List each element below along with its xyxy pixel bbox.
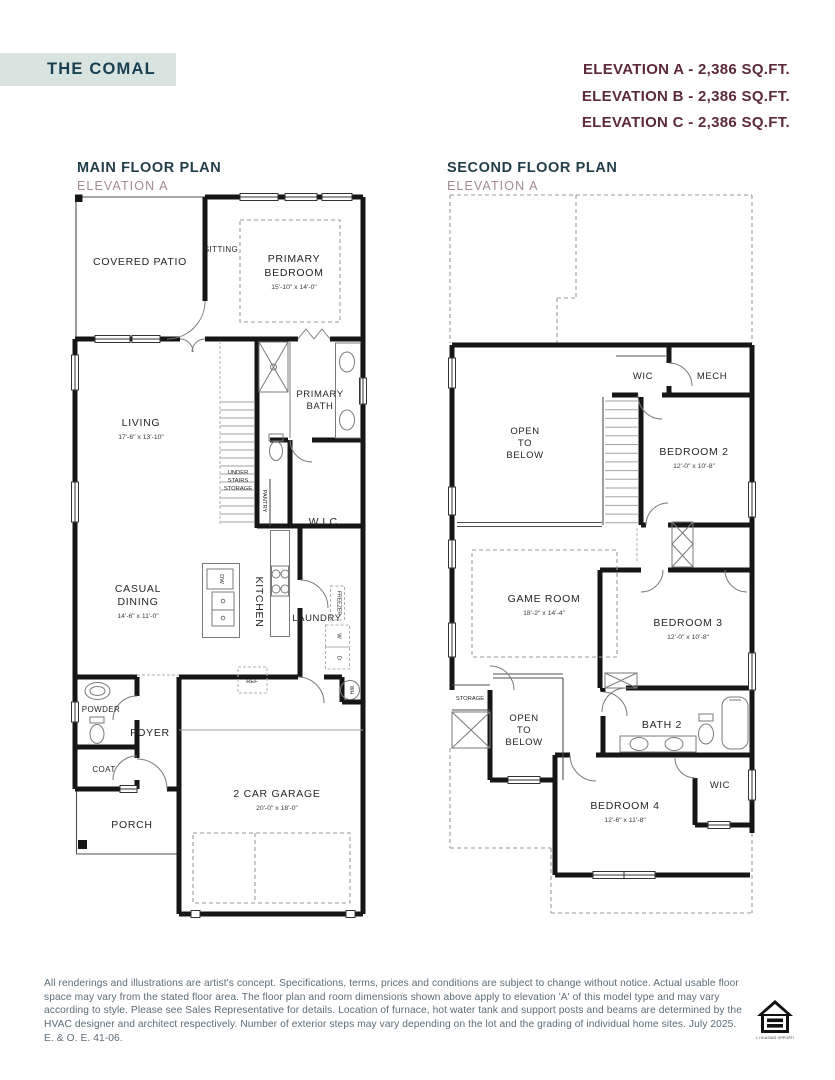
logo-caption: EQUAL HOUSING OPPORTUNITY xyxy=(756,1036,794,1040)
label-mech: MECH xyxy=(697,371,727,382)
label-wic: W.I.C. xyxy=(309,516,342,528)
main-floor-plan-title: MAIN FLOOR PLAN xyxy=(77,160,221,176)
label-open2-1: OPEN xyxy=(509,713,538,724)
elevation-b: ELEVATION B - 2,386 SQ.FT. xyxy=(582,84,790,111)
label-garage: 2 CAR GARAGE xyxy=(233,788,320,800)
second-floor-plan-title: SECOND FLOOR PLAN xyxy=(447,160,618,176)
label-freezer: FREEZER xyxy=(336,591,342,615)
label-under-stairs-1: UNDER xyxy=(228,470,249,476)
label-bedroom4-dims: 12'-6" x 11'-8" xyxy=(604,817,646,824)
washer-dryer xyxy=(326,625,350,669)
label-porch: PORCH xyxy=(111,819,152,831)
label-dw: DW xyxy=(218,574,224,584)
equal-housing-opportunity-logo: EQUAL HOUSING OPPORTUNITY xyxy=(756,999,794,1045)
label-washer: W xyxy=(336,633,342,639)
label-wic-top: WIC xyxy=(633,371,653,382)
label-primary-1: PRIMARY xyxy=(268,253,321,265)
label-covered-patio: COVERED PATIO xyxy=(93,256,187,268)
house-icon xyxy=(757,1000,793,1033)
label-primary-bath-2: BATH xyxy=(306,401,333,412)
label-game-room-dims: 18'-2" x 14'-4" xyxy=(523,610,565,617)
label-casual-1: CASUAL xyxy=(115,583,161,595)
label-coat: COAT xyxy=(92,765,115,774)
label-pantry: PANTRY xyxy=(261,490,267,513)
main-walls xyxy=(75,197,363,914)
stairs-second xyxy=(603,397,639,562)
label-foyer: FOYER xyxy=(130,727,170,739)
label-bedroom4: BEDROOM 4 xyxy=(590,800,659,812)
label-living-dims: 17'-6" x 13'-10" xyxy=(118,434,164,441)
second-floor-plan-drawing: WIC MECH OPEN TO BELOW BEDROOM 2 12'-0" … xyxy=(442,188,758,920)
label-laundry: LAUNDRY xyxy=(292,613,341,624)
main-floor-plan-drawing: COVERED PATIO SITTING PRIMARY BEDROOM 15… xyxy=(66,188,370,920)
label-wh: WH xyxy=(348,686,354,695)
label-under-stairs-3: STORAGE xyxy=(224,486,252,492)
label-primary-bath-1: PRIMARY xyxy=(296,389,343,400)
label-bedroom2-dims: 12'-0" x 10'-8" xyxy=(673,463,715,470)
door-swings xyxy=(113,301,330,789)
label-casual-2: DINING xyxy=(118,596,159,608)
garage-door-dashed xyxy=(179,730,363,903)
label-garage-dims: 20'-0" x 18'-0" xyxy=(256,805,298,812)
label-ref: REF xyxy=(246,679,258,685)
label-primary-2: BEDROOM xyxy=(264,267,323,279)
label-open1-3: BELOW xyxy=(506,450,543,461)
label-bedroom3-dims: 12'-0" x 10'-8" xyxy=(667,634,709,641)
label-primary-dims: 15'-10" x 14'-0" xyxy=(271,284,317,291)
label-living: LIVING xyxy=(122,417,161,429)
elevation-c: ELEVATION C - 2,386 SQ.FT. xyxy=(582,110,790,137)
label-open2-3: BELOW xyxy=(505,737,542,748)
label-open2-2: TO xyxy=(517,725,531,736)
label-sitting: SITTING xyxy=(204,245,238,254)
label-open1-1: OPEN xyxy=(510,426,539,437)
label-open1-2: TO xyxy=(518,438,532,449)
kitchen-range xyxy=(271,531,290,637)
label-bedroom2: BEDROOM 2 xyxy=(659,446,728,458)
label-wic-b4: WIC xyxy=(710,780,730,791)
label-under-stairs-2: STAIRS xyxy=(228,478,249,484)
primary-shower xyxy=(259,342,288,392)
label-bath2: BATH 2 xyxy=(642,719,682,731)
disclaimer-text: All renderings and illustrations are art… xyxy=(44,977,744,1046)
second-walls xyxy=(452,345,752,875)
label-powder: POWDER xyxy=(82,705,120,714)
label-dryer: D xyxy=(336,656,342,660)
model-title-box: THE COMAL xyxy=(0,53,176,86)
windows xyxy=(72,194,367,918)
elevation-list: ELEVATION A - 2,386 SQ.FT. ELEVATION B -… xyxy=(582,57,790,137)
label-bedroom3: BEDROOM 3 xyxy=(653,617,722,629)
elevation-a: ELEVATION A - 2,386 SQ.FT. xyxy=(582,57,790,84)
bath2-fixtures xyxy=(620,697,748,752)
label-game-room: GAME ROOM xyxy=(508,593,581,605)
closets xyxy=(452,522,693,748)
label-storage: STORAGE xyxy=(456,696,484,702)
model-title: THE COMAL xyxy=(0,60,156,79)
label-casual-dims: 14'-6" x 11'-0" xyxy=(117,613,159,620)
label-kitchen: KITCHEN xyxy=(253,577,265,628)
